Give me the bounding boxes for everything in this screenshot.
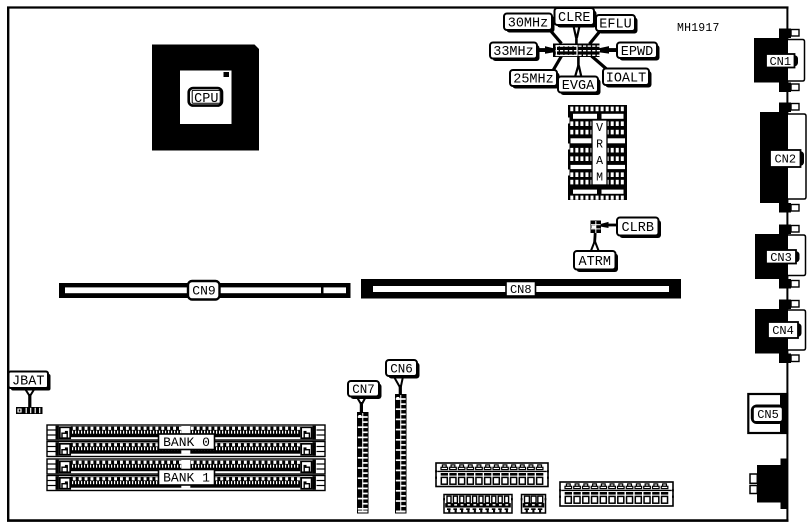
svg-text:30MHz: 30MHz	[508, 16, 549, 31]
svg-text:EPWD: EPWD	[621, 45, 653, 60]
svg-text:25MHz: 25MHz	[513, 73, 554, 88]
svg-text:CN3: CN3	[770, 251, 792, 265]
svg-text:CN2: CN2	[774, 153, 796, 167]
svg-text:MH1917: MH1917	[677, 22, 720, 35]
svg-text:EVGA: EVGA	[562, 79, 595, 94]
svg-text:ATRM: ATRM	[579, 255, 611, 270]
svg-text:CLRE: CLRE	[558, 11, 590, 26]
svg-text:CN9: CN9	[192, 284, 215, 299]
svg-text:CLRB: CLRB	[622, 221, 654, 236]
svg-text:33MHz: 33MHz	[493, 45, 534, 60]
svg-text:CN1: CN1	[769, 55, 791, 69]
svg-text:A: A	[596, 155, 603, 168]
svg-text:IOALT: IOALT	[606, 71, 647, 86]
svg-text:R: R	[596, 139, 603, 152]
svg-text:CN6: CN6	[390, 362, 413, 376]
svg-text:EFLU: EFLU	[599, 18, 631, 33]
svg-text:CN7: CN7	[352, 383, 375, 397]
svg-text:BANK 0: BANK 0	[163, 435, 210, 450]
svg-text:CN4: CN4	[772, 324, 794, 338]
svg-text:CN8: CN8	[510, 283, 532, 297]
svg-text:JBAT: JBAT	[12, 374, 44, 389]
svg-text:CPU: CPU	[194, 92, 218, 107]
svg-text:M: M	[596, 172, 603, 185]
svg-text:BANK 1: BANK 1	[163, 471, 210, 486]
svg-text:CN5: CN5	[757, 408, 779, 422]
svg-text:V: V	[596, 122, 603, 135]
